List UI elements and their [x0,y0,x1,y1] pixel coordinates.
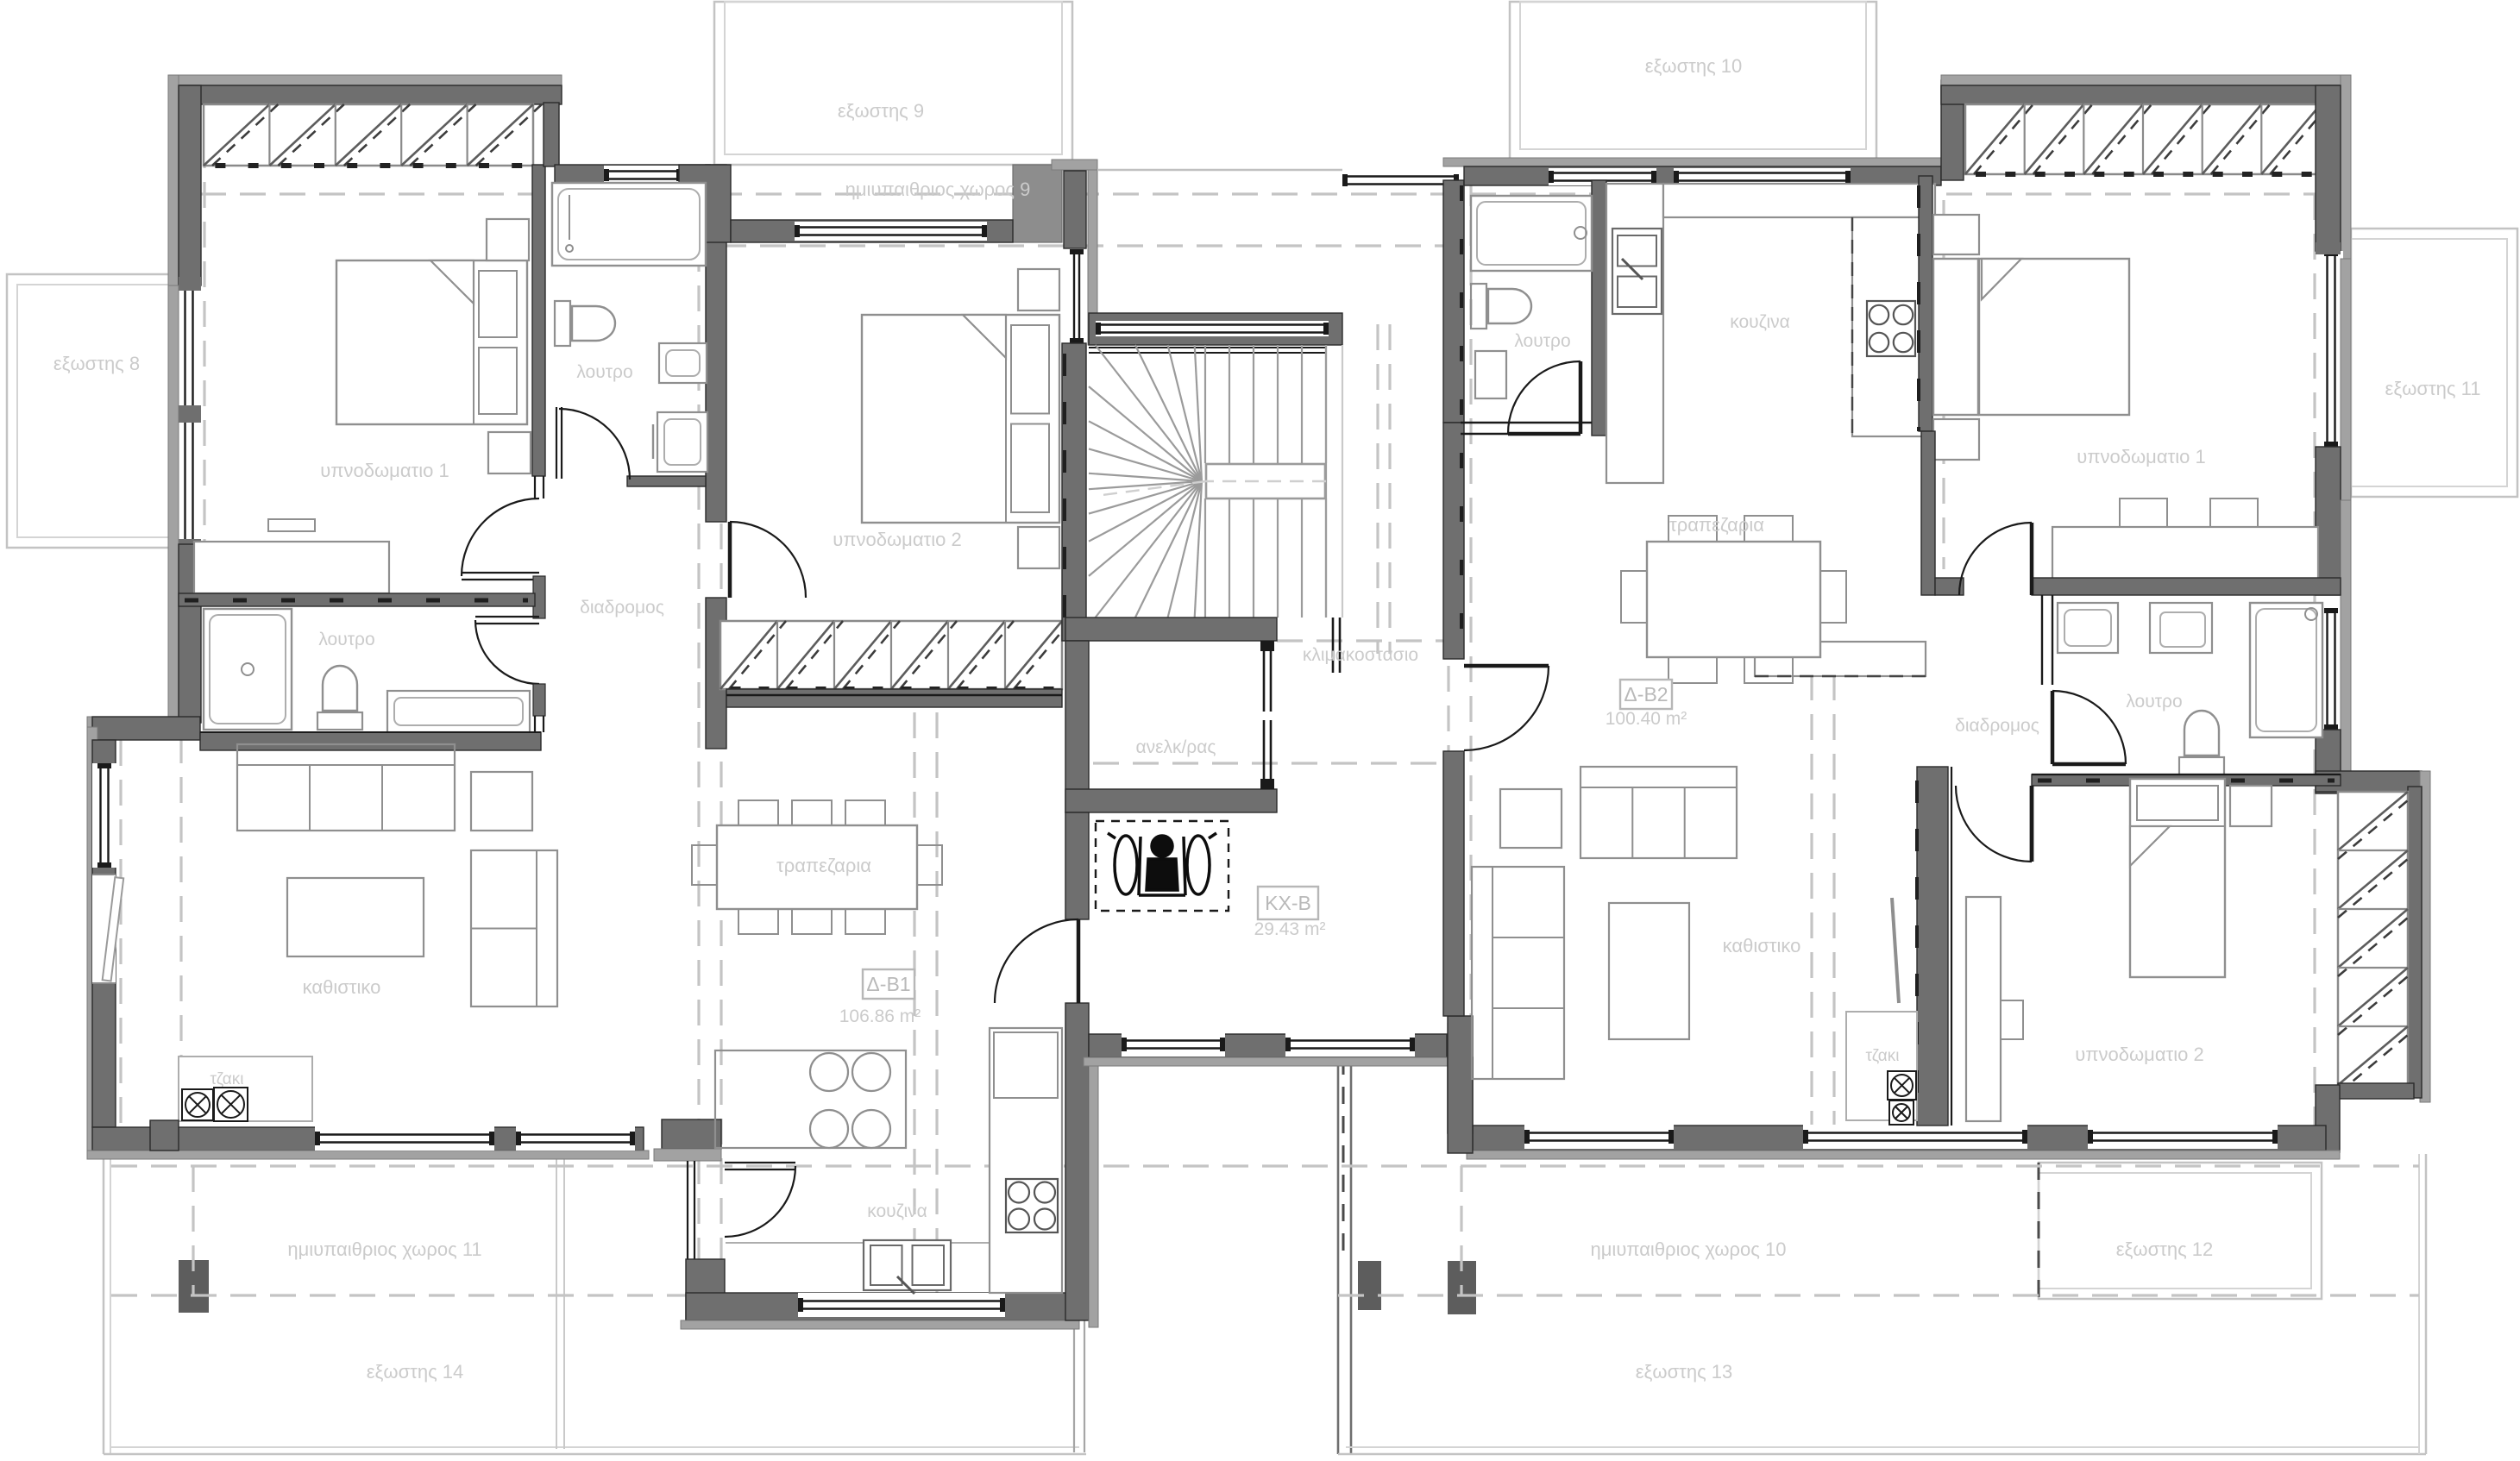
svg-text:κουζινα: κουζινα [867,1201,927,1221]
svg-text:ημιυπαιθριος χωρος 10: ημιυπαιθριος χωρος 10 [1591,1238,1787,1260]
svg-text:υπνοδωματιο 1: υπνοδωματιο 1 [2077,446,2205,467]
svg-text:εξωστης 12: εξωστης 12 [2116,1238,2214,1260]
svg-text:λουτρο: λουτρο [318,630,374,649]
svg-text:κλιμακοστασιο: κλιμακοστασιο [1303,645,1418,665]
svg-text:KX-B: KX-B [1265,892,1311,914]
svg-text:υπνοδωματιο 2: υπνοδωματιο 2 [833,529,961,550]
svg-text:καθιστικο: καθιστικο [303,976,381,998]
svg-text:υπνοδωματιο 1: υπνοδωματιο 1 [320,460,449,481]
svg-text:29.43 m²: 29.43 m² [1254,919,1326,939]
svg-text:λουτρο: λουτρο [576,362,632,382]
svg-text:εξωστης 8: εξωστης 8 [53,353,140,374]
svg-text:καθιστικο: καθιστικο [1723,935,1801,956]
svg-text:100.40 m²: 100.40 m² [1606,709,1687,729]
svg-text:Δ-B2: Δ-B2 [1624,683,1668,705]
svg-text:εξωστης 14: εξωστης 14 [367,1361,464,1383]
svg-text:λουτρο: λουτρο [1514,331,1570,351]
svg-text:τζακι: τζακι [210,1070,243,1088]
svg-text:διαδρομος: διαδρομος [580,598,664,618]
svg-text:τζακι: τζακι [1865,1047,1899,1065]
svg-text:τραπεζαρια: τραπεζαρια [1669,514,1764,536]
svg-text:εξωστης 11: εξωστης 11 [2385,378,2481,399]
svg-text:λουτρο: λουτρο [2126,692,2182,712]
svg-text:εξωστης 13: εξωστης 13 [1636,1361,1733,1383]
svg-text:διαδρομος: διαδρομος [1955,716,2039,736]
svg-text:εξωστης 10: εξωστης 10 [1645,55,1743,77]
svg-text:τραπεζαρια: τραπεζαρια [776,855,871,876]
svg-text:εξωστης 9: εξωστης 9 [838,100,924,122]
svg-text:ανελκ/ρας: ανελκ/ρας [1135,737,1216,757]
svg-text:106.86 m²: 106.86 m² [839,1006,921,1026]
svg-text:ημιυπαιθριος χωρος 9: ημιυπαιθριος χωρος 9 [845,179,1031,200]
svg-text:υπνοδωματιο 2: υπνοδωματιο 2 [2075,1044,2203,1065]
svg-text:κουζινα: κουζινα [1730,312,1790,332]
svg-text:ημιυπαιθριος χωρος 11: ημιυπαιθριος χωρος 11 [287,1238,481,1260]
svg-text:Δ-B1: Δ-B1 [866,973,910,995]
